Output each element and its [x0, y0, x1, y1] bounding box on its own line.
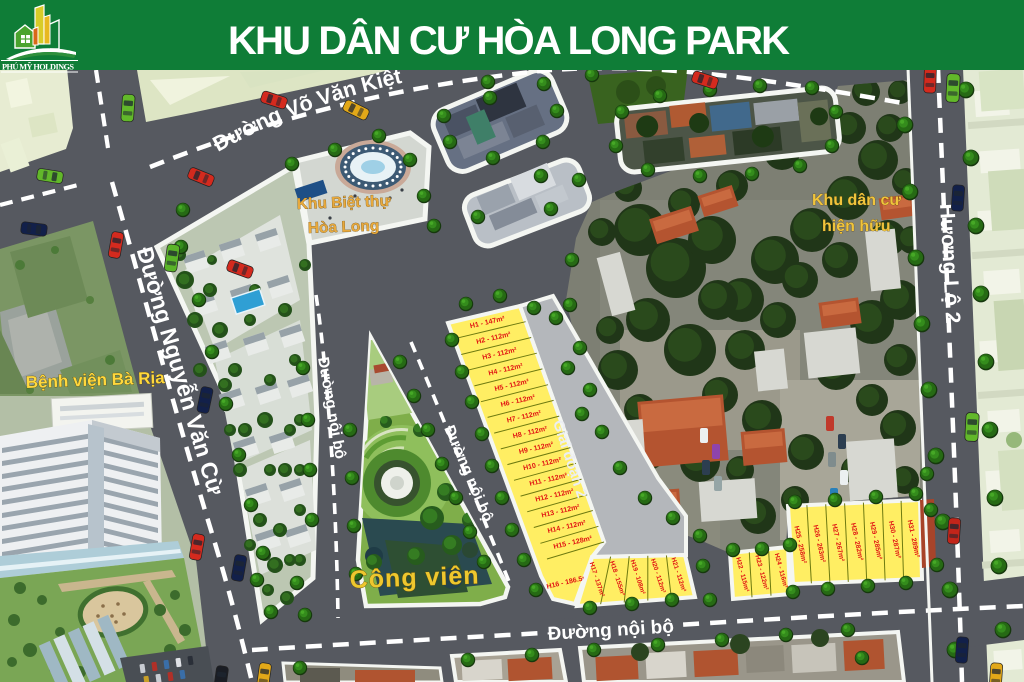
- svg-text:Khu dân cư: Khu dân cư: [812, 192, 901, 209]
- svg-text:Công viên: Công viên: [349, 561, 480, 594]
- svg-text:hiện hữu: hiện hữu: [822, 218, 890, 235]
- svg-text:PHÚ MỸ HOLDINGS: PHÚ MỸ HOLDINGS: [2, 62, 74, 72]
- svg-text:Khu Biệt thự: Khu Biệt thự: [297, 193, 392, 213]
- svg-text:Hòa Long: Hòa Long: [308, 218, 380, 237]
- svg-text:KHU DÂN CƯ HÒA LONG PARK: KHU DÂN CƯ HÒA LONG PARK: [228, 17, 790, 63]
